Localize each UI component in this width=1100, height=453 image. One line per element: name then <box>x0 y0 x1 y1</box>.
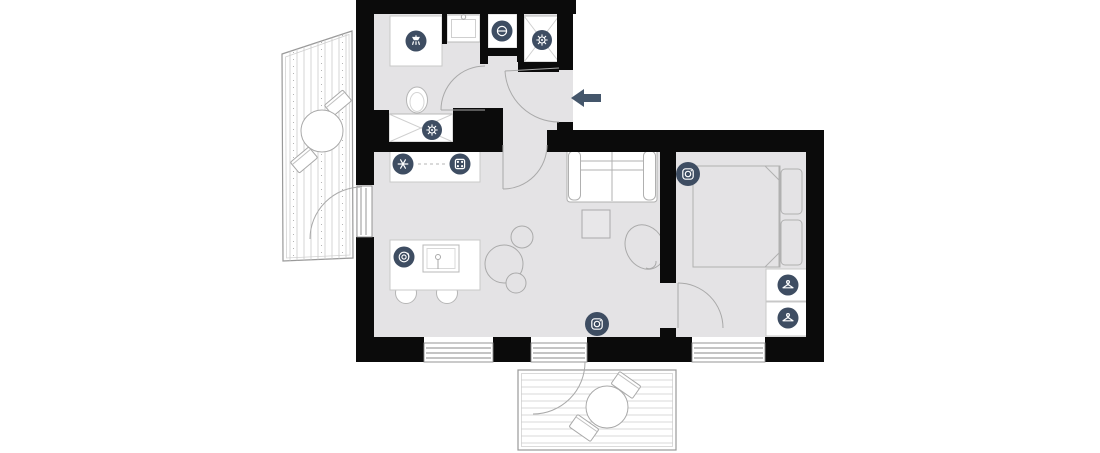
pouf <box>506 273 526 293</box>
hanger-lower-icon <box>778 308 799 329</box>
tv-living-icon <box>585 312 609 336</box>
fridge-snowflake-icon <box>393 154 414 175</box>
balcony <box>282 31 353 261</box>
balcony-door <box>357 186 372 237</box>
pouf <box>511 226 533 248</box>
terrace <box>518 370 676 450</box>
pillow <box>781 169 802 214</box>
living-window <box>424 343 493 362</box>
stove-icon <box>450 154 471 175</box>
gear-unit-icon <box>422 120 442 140</box>
gear-shaft-icon <box>532 30 552 50</box>
utility-box <box>389 114 453 142</box>
dishwasher-icon <box>394 247 415 268</box>
sofa <box>567 149 657 202</box>
island-faucet <box>436 255 441 260</box>
bed <box>693 166 780 267</box>
balcony-table <box>301 110 343 152</box>
tv-bedroom-icon <box>676 162 700 186</box>
coffee-table <box>582 210 610 238</box>
entrance-arrow <box>571 89 601 107</box>
bathroom-sink <box>447 15 480 42</box>
shower-icon <box>406 31 427 52</box>
laundry-machine-icon <box>492 21 513 42</box>
pillow <box>781 220 802 265</box>
floor-plan <box>0 0 1100 453</box>
terrace-door <box>531 343 587 362</box>
hanger-upper-icon <box>778 275 799 296</box>
toilet <box>407 87 428 113</box>
terrace-table <box>586 386 628 428</box>
bedroom-window <box>692 343 765 362</box>
